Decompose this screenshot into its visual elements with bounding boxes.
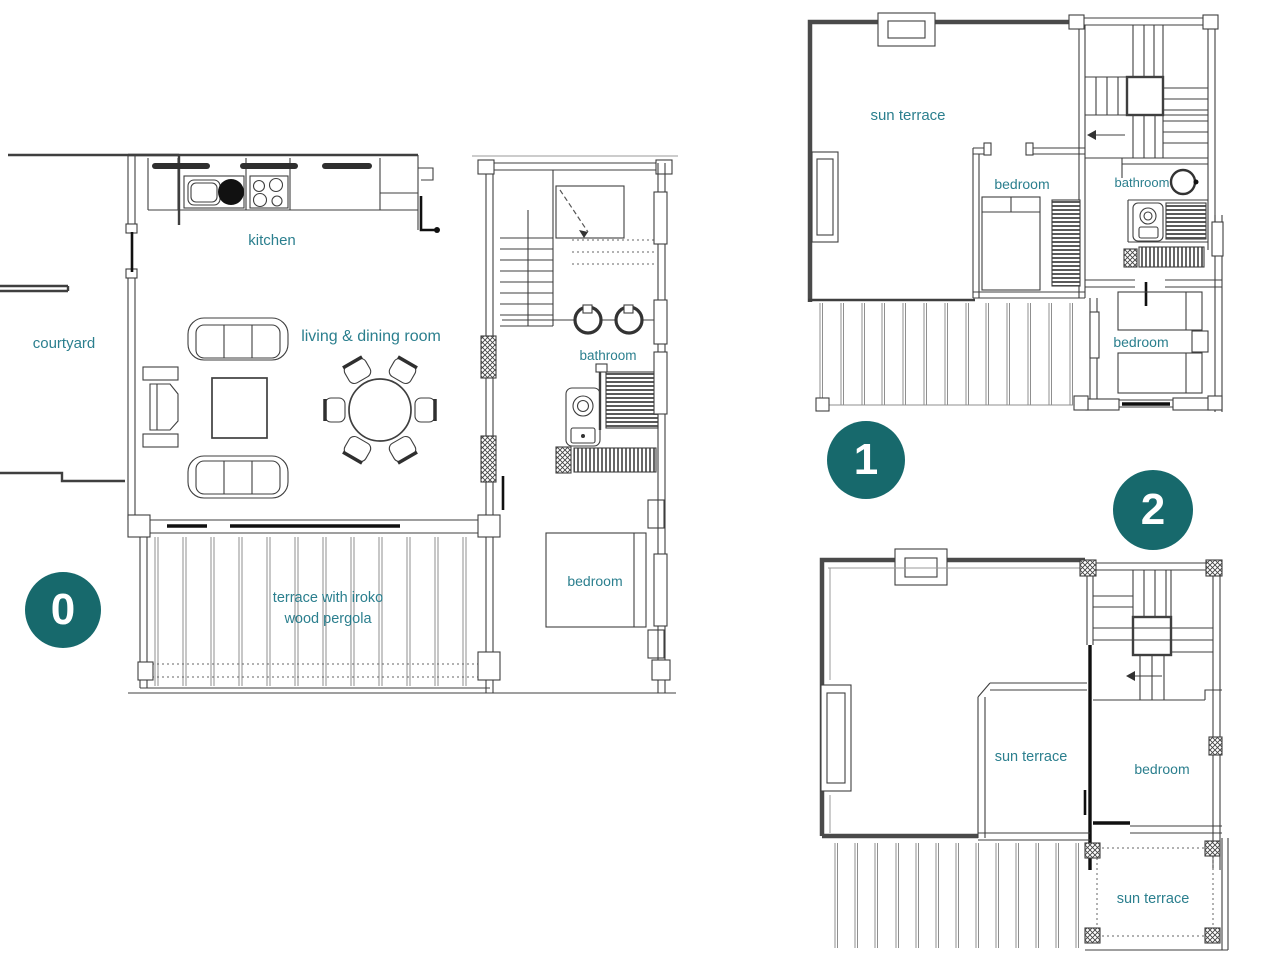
toilet-icon xyxy=(1133,203,1163,241)
floor-1-badge: 1 xyxy=(827,421,905,499)
roof-window xyxy=(895,549,947,585)
room-label-bathroom: bathroom xyxy=(579,348,636,363)
wardrobe-icon xyxy=(1052,200,1080,286)
bedroom-right-walls xyxy=(1074,215,1223,412)
room-label-sun-terrace: sun terrace xyxy=(870,107,945,124)
radiator-icon xyxy=(1124,247,1204,267)
badge-number: 2 xyxy=(1141,488,1165,532)
stove-icon xyxy=(250,176,288,208)
living-terrace-wall xyxy=(128,515,500,537)
terrace-outer-wall xyxy=(822,560,1085,836)
room-label-terrace-line2: wood pergola xyxy=(283,611,372,627)
room-label-living-dining: living & dining room xyxy=(301,328,441,345)
room-label-bedroom: bedroom xyxy=(994,176,1049,192)
floor-2-badge: 2 xyxy=(1113,470,1193,550)
stairs xyxy=(472,156,678,326)
living-room-furniture xyxy=(143,318,435,498)
terrace-outer-wall xyxy=(810,22,1072,302)
badge-number: 0 xyxy=(51,588,75,632)
room-label-bedroom: bedroom xyxy=(1134,761,1189,777)
floor-0-plan: kitchen courtyard living & dining room b… xyxy=(0,155,678,693)
dining-table-icon xyxy=(325,356,435,463)
floorplans-drawing: kitchen courtyard living & dining room b… xyxy=(0,0,1280,960)
kitchen-sink-icon xyxy=(184,176,244,208)
bed-icon xyxy=(982,197,1040,290)
stairs xyxy=(1085,25,1208,158)
fireplace-icon xyxy=(143,367,178,447)
coffee-table-icon xyxy=(212,378,267,438)
kitchen-counter xyxy=(128,155,440,233)
terrace-window xyxy=(812,152,838,242)
room-label-terrace-line1: terrace with iroko xyxy=(273,590,383,606)
room-label-bedroom: bedroom xyxy=(1113,334,1168,350)
bedroom-walls xyxy=(1093,737,1222,833)
roof-window xyxy=(878,13,935,46)
room-label-courtyard: courtyard xyxy=(33,335,96,352)
floor-1-plan: sun terrace bedroom bathroom bedroom xyxy=(808,13,1223,412)
badge-number: 1 xyxy=(854,438,878,482)
basin-icon xyxy=(1171,170,1195,194)
terrace-window xyxy=(821,685,851,791)
bed-icon xyxy=(1118,353,1202,393)
floor-2-plan: sun terrace bedroom sun terrace xyxy=(821,549,1228,950)
room-label-bathroom: bathroom xyxy=(1115,175,1170,190)
room-label-kitchen: kitchen xyxy=(248,232,296,249)
sofa-icon xyxy=(188,318,288,360)
corridor-wall xyxy=(481,163,503,693)
toilet-icon xyxy=(566,388,600,446)
pergola-beams xyxy=(835,843,1079,948)
sofa-icon xyxy=(188,456,288,498)
terrace-pergola xyxy=(128,537,676,693)
kitchen-wall-left xyxy=(126,155,137,520)
floor-0-badge: 0 xyxy=(25,572,101,648)
room-label-sun-terrace: sun terrace xyxy=(995,749,1068,765)
pergola-beams xyxy=(816,303,1075,411)
bathroom-fixtures xyxy=(502,305,658,473)
room-label-sun-terrace-lower: sun terrace xyxy=(1117,891,1190,907)
shower-icon xyxy=(1166,203,1206,239)
radiator-icon xyxy=(556,447,656,473)
floorplan-sheet: kitchen courtyard living & dining room b… xyxy=(0,0,1280,960)
courtyard-walls xyxy=(0,155,179,481)
shower-icon xyxy=(596,364,658,430)
stairs xyxy=(1093,570,1222,700)
room-label-bedroom: bedroom xyxy=(567,573,622,589)
bed-icon xyxy=(1118,292,1202,330)
